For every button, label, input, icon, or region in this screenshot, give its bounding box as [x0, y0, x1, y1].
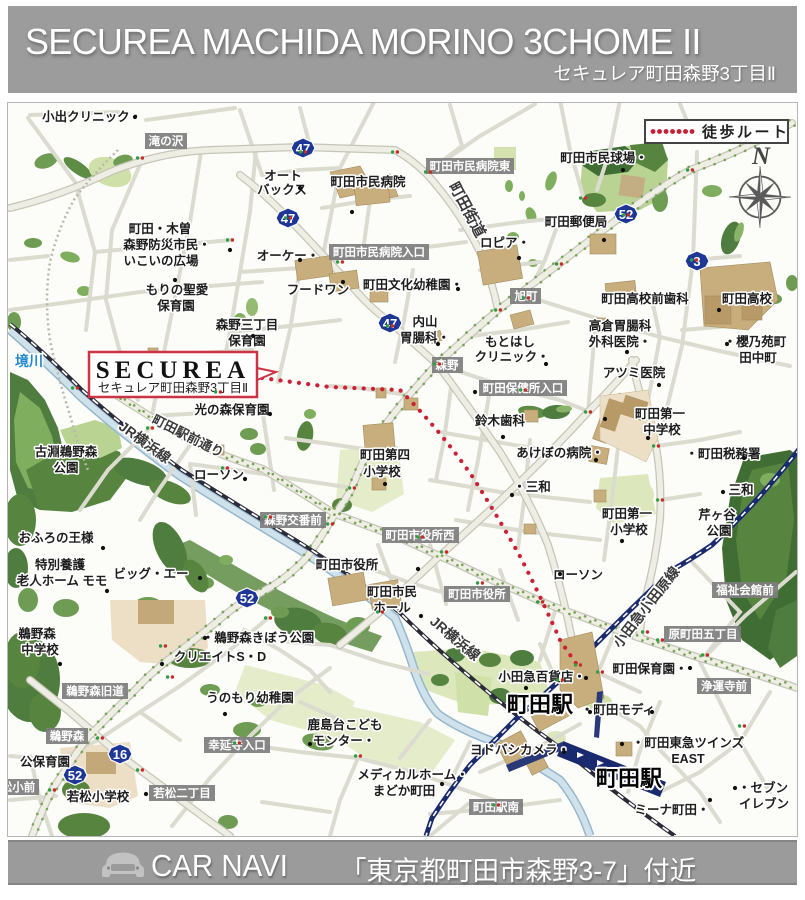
svg-text:52: 52 [619, 207, 633, 222]
svg-text:公園: 公園 [706, 524, 731, 538]
svg-text:幸延寺入口: 幸延寺入口 [208, 738, 266, 752]
svg-text:旭町: 旭町 [514, 289, 538, 303]
svg-text:クリニック・: クリニック・ [475, 350, 550, 364]
svg-text:滝の沢: 滝の沢 [149, 134, 184, 148]
svg-text:・町田東急ツインズ: ・町田東急ツインズ [632, 735, 745, 750]
svg-text:ロピア・: ロピア・ [480, 236, 530, 250]
svg-text:町田高校: 町田高校 [722, 291, 773, 306]
svg-text:小出クリニック・: 小出クリニック・ [41, 109, 142, 124]
svg-text:町田保健所入口: 町田保健所入口 [483, 381, 564, 395]
svg-text:16: 16 [113, 747, 127, 762]
svg-text:胃腸科・: 胃腸科・ [400, 330, 450, 345]
svg-text:町田市民病院東: 町田市民病院東 [430, 159, 511, 173]
svg-text:原町田五丁目: 原町田五丁目 [669, 628, 738, 641]
svg-text:あけぼの病院・: あけぼの病院・ [516, 445, 604, 460]
svg-text:内山: 内山 [412, 314, 437, 329]
svg-text:町田高校前歯科: 町田高校前歯科 [601, 291, 689, 306]
svg-text:おふろの王様: おふろの王様 [18, 530, 94, 545]
svg-text:町田駅: 町田駅 [596, 766, 662, 791]
svg-text:47: 47 [383, 316, 397, 331]
svg-text:・櫻乃苑町: ・櫻乃苑町 [724, 334, 787, 349]
svg-text:町田市民: 町田市民 [367, 584, 417, 599]
svg-text:芹ヶ谷: 芹ヶ谷 [698, 507, 736, 522]
svg-text:公保育園: 公保育園 [20, 754, 70, 769]
svg-text:松小前: 松小前 [8, 780, 36, 794]
svg-text:町田駅: 町田駅 [507, 692, 573, 717]
svg-text:N: N [751, 143, 771, 170]
svg-text:もりの聖愛: もりの聖愛 [146, 282, 209, 297]
svg-text:鵜野森: 鵜野森 [49, 729, 85, 743]
svg-text:EAST: EAST [671, 752, 705, 766]
svg-text:保育園: 保育園 [227, 333, 266, 348]
svg-text:・町田税務署: ・町田税務署 [685, 446, 761, 461]
svg-text:鈴木歯科: 鈴木歯科 [475, 413, 526, 428]
svg-text:町田市民球場・: 町田市民球場・ [560, 150, 648, 165]
svg-text:森野三丁目: 森野三丁目 [216, 317, 279, 332]
svg-text:保育園: 保育園 [156, 298, 195, 313]
svg-text:セキュレア町田森野3丁目Ⅱ: セキュレア町田森野3丁目Ⅱ [98, 380, 248, 395]
svg-text:まどか町田: まどか町田 [373, 784, 436, 798]
svg-text:オート: オート [264, 169, 302, 183]
svg-text:フードワン: フードワン [287, 283, 350, 297]
svg-text:浄運寺前: 浄運寺前 [701, 679, 747, 693]
svg-text:ミーナ町田・: ミーナ町田・ [634, 803, 709, 817]
svg-text:アツミ医院: アツミ医院 [603, 365, 666, 380]
svg-text:・鵜野森きぼう公園: ・鵜野森きぼう公園 [202, 630, 315, 645]
svg-text:・三和: ・三和 [513, 479, 551, 494]
svg-text:森野交番前: 森野交番前 [264, 513, 322, 527]
svg-text:三和: 三和 [728, 482, 753, 497]
svg-text:森野防災市民・: 森野防災市民・ [123, 237, 211, 252]
svg-text:小学校: 小学校 [609, 522, 648, 537]
svg-text:福祉会館前: 福祉会館前 [715, 583, 774, 597]
svg-text:町田駅南: 町田駅南 [473, 800, 519, 814]
svg-text:徒歩ルート: 徒歩ルート [701, 123, 790, 141]
svg-text:うのもり幼稚園: うのもり幼稚園 [206, 690, 294, 705]
svg-text:52: 52 [68, 768, 82, 783]
svg-text:もとはし: もとはし [485, 335, 535, 349]
svg-text:ヨドバシカメラ・: ヨドバシカメラ・ [470, 743, 570, 757]
svg-text:老人ホーム モモ: 老人ホーム モモ [16, 573, 108, 588]
svg-text:クリエイトS・D: クリエイトS・D [174, 650, 266, 664]
svg-text:町田市役所西: 町田市役所西 [386, 528, 455, 542]
svg-text:47: 47 [296, 141, 310, 156]
svg-text:町田市民病院入口: 町田市民病院入口 [333, 245, 425, 259]
svg-text:イレブン: イレブン [739, 796, 789, 811]
svg-text:町田郵便局: 町田郵便局 [545, 214, 608, 229]
svg-text:町田第一: 町田第一 [635, 406, 686, 421]
svg-text:・セブン: ・セブン [738, 780, 788, 795]
svg-text:いこいの広場: いこいの広場 [123, 253, 199, 268]
svg-text:中学校: 中学校 [643, 422, 681, 437]
svg-text:町田市役所: 町田市役所 [448, 587, 506, 601]
svg-text:ビッグ・エー: ビッグ・エー [113, 566, 188, 581]
svg-text:特別養護: 特別養護 [35, 557, 86, 572]
svg-text:町田・木曽: 町田・木曽 [129, 221, 192, 236]
svg-text:メディカルホーム・: メディカルホーム・ [357, 767, 468, 782]
svg-text:ローソン: ローソン [194, 468, 244, 482]
svg-text:オーケー・: オーケー・ [257, 249, 320, 263]
svg-text:47: 47 [281, 211, 295, 226]
svg-text:外科医院・: 外科医院・ [588, 334, 652, 349]
svg-text:町田市民病院: 町田市民病院 [330, 174, 406, 189]
svg-text:古淵鵜野森: 古淵鵜野森 [35, 444, 98, 459]
svg-text:公園: 公園 [53, 461, 78, 475]
svg-text:52: 52 [240, 591, 254, 606]
svg-text:若松小学校: 若松小学校 [66, 789, 130, 804]
svg-text:町田市役所: 町田市役所 [316, 557, 379, 572]
svg-text:小田急百貨店・: 小田急百貨店・ [497, 669, 586, 684]
svg-text:町田保育園・: 町田保育園・ [612, 661, 687, 676]
svg-text:町田第四: 町田第四 [360, 447, 410, 462]
svg-text:モンター・: モンター・ [313, 733, 376, 748]
svg-text:SECUREA: SECUREA [96, 357, 250, 384]
svg-text:町田文化幼稚園・: 町田文化幼稚園・ [363, 277, 463, 292]
svg-text:鹿島台こども: 鹿島台こども [307, 717, 382, 732]
svg-text:光の森保育園: 光の森保育園 [193, 402, 269, 417]
svg-text:田中町: 田中町 [739, 350, 777, 365]
svg-text:小学校: 小学校 [362, 464, 401, 479]
svg-text:鵜野森旧道: 鵜野森旧道 [65, 684, 124, 698]
svg-text:・町田モディ: ・町田モディ [581, 702, 655, 717]
svg-text:町田第一: 町田第一 [602, 506, 653, 521]
svg-text:若松二丁目: 若松二丁目 [153, 786, 211, 800]
svg-text:中学校: 中学校 [21, 642, 59, 657]
svg-text:高倉胃腸科: 高倉胃腸科 [589, 318, 652, 333]
svg-text:鵜野森: 鵜野森 [17, 626, 56, 641]
svg-text:境川: 境川 [15, 353, 43, 369]
